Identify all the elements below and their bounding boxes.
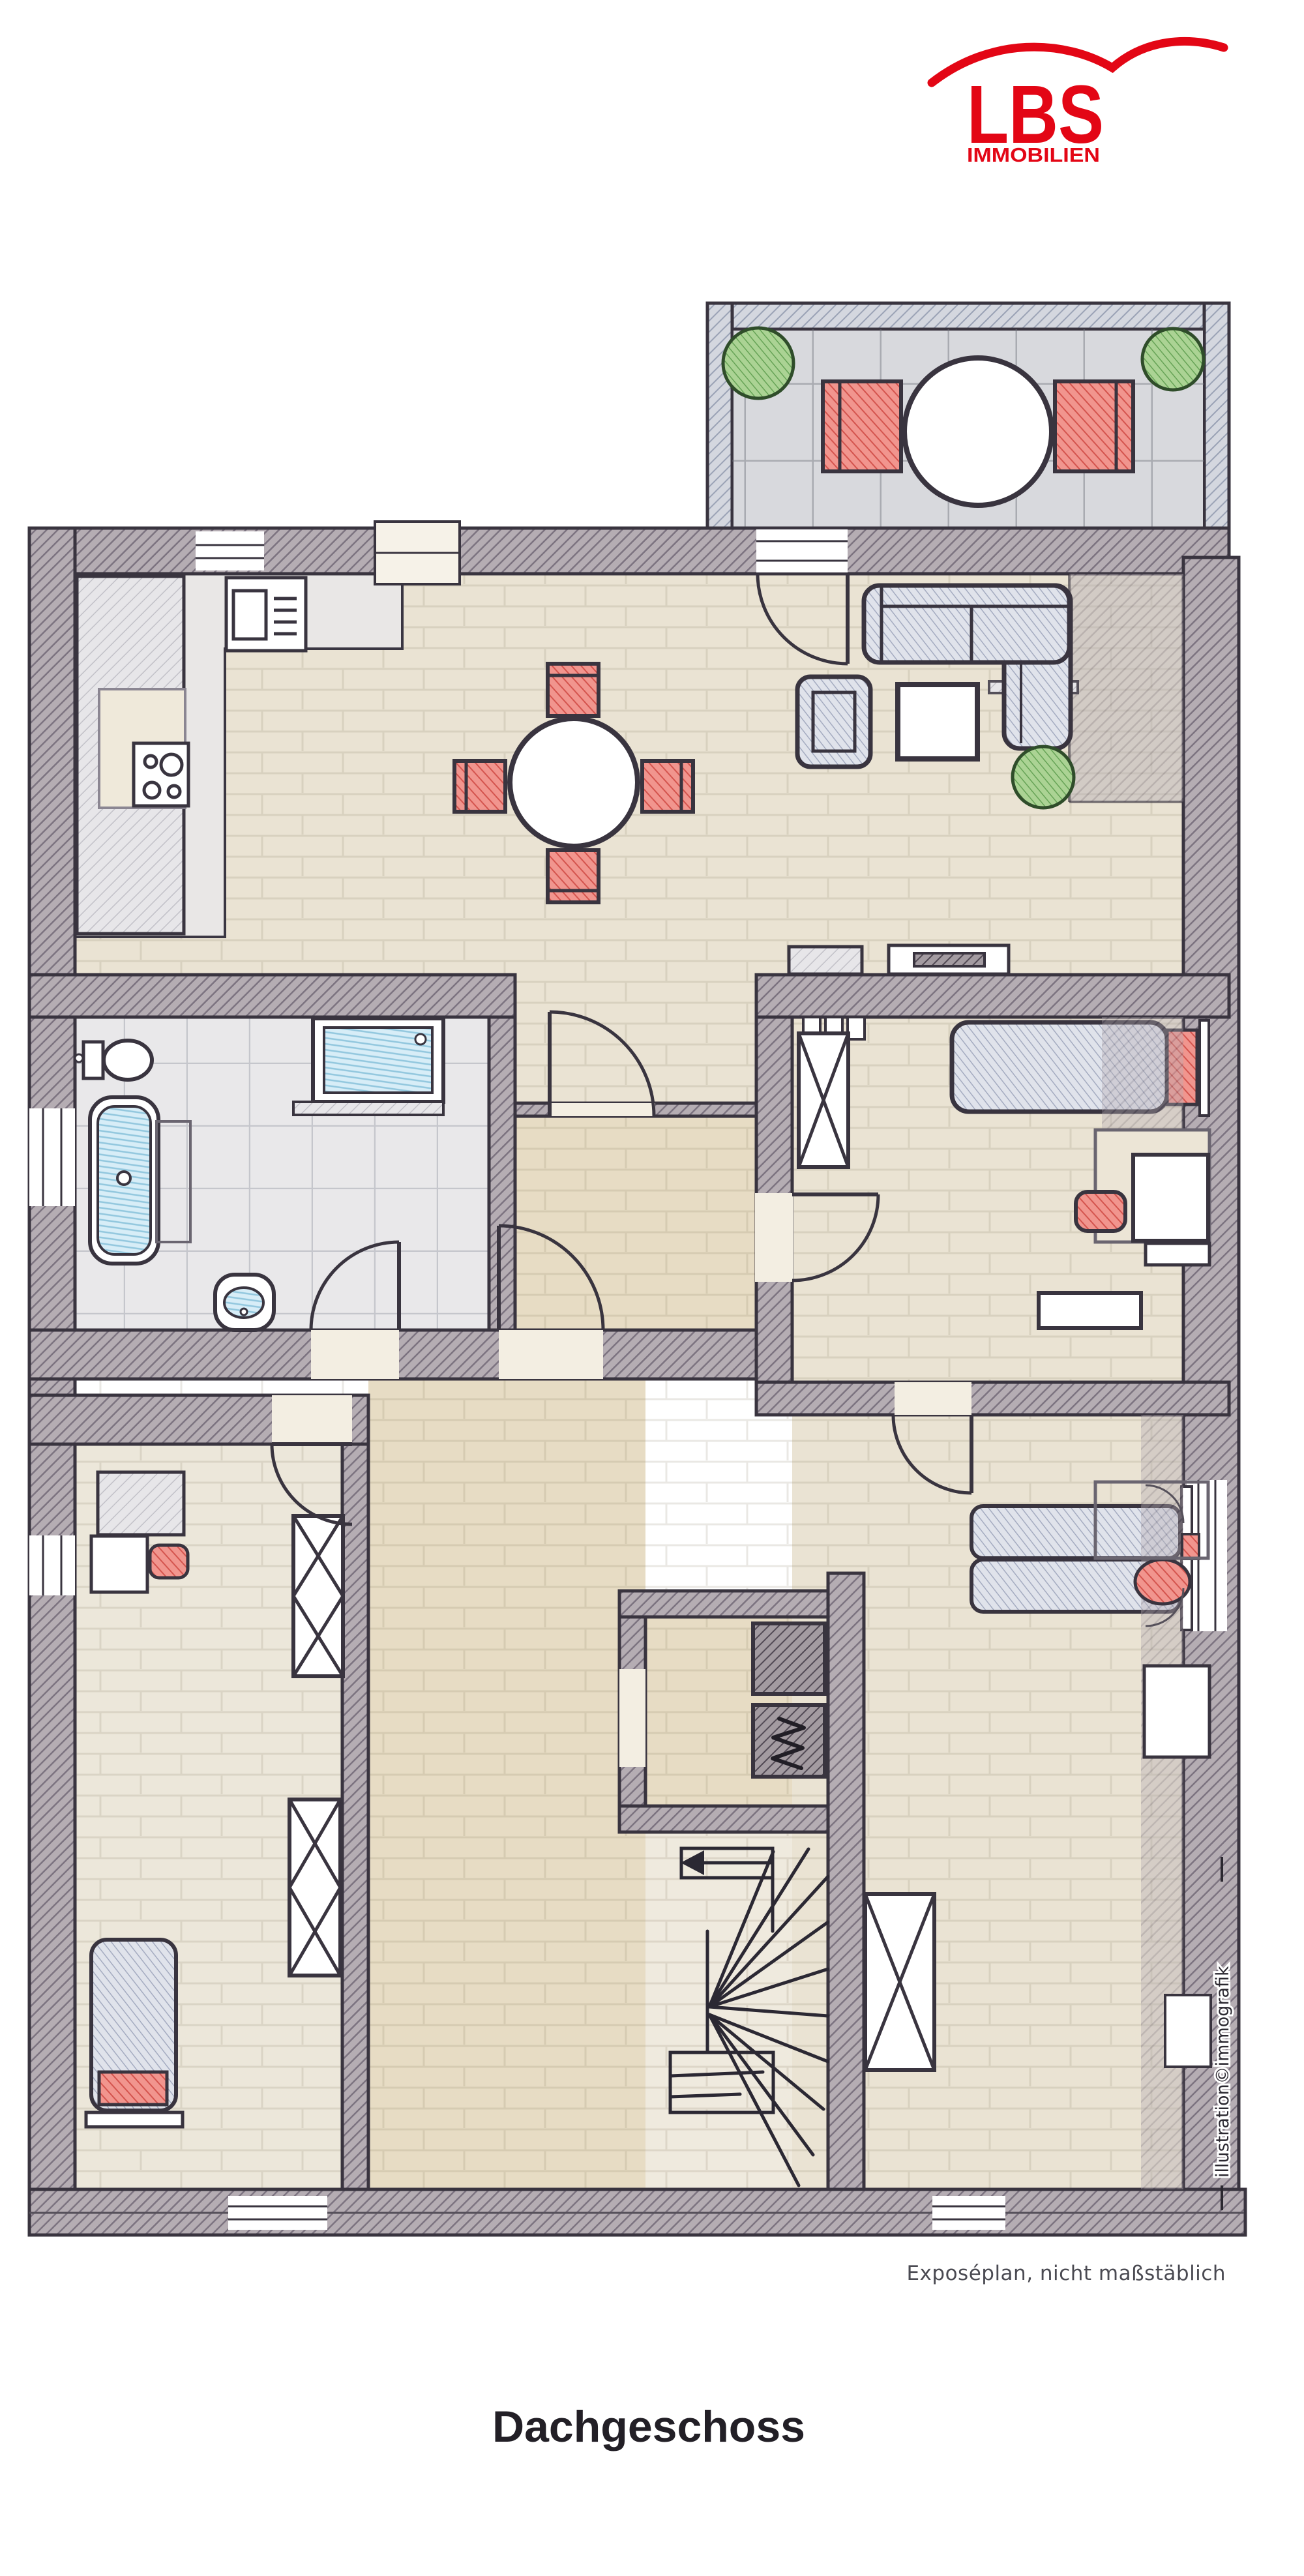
door-opening — [499, 1330, 603, 1379]
sideboard — [789, 947, 862, 974]
dining-table — [510, 718, 638, 846]
dining-chair — [454, 761, 505, 812]
window — [29, 1108, 75, 1206]
knee-wall — [1141, 1415, 1183, 2189]
door-opening — [619, 1669, 645, 1767]
balcony — [707, 303, 1229, 557]
washing-machine-icon — [753, 1623, 825, 1694]
sideboard — [1144, 1666, 1209, 1757]
dining-chair — [548, 664, 599, 716]
logo-subtext: IMMOBILIEN — [967, 143, 1100, 166]
balcony-table — [904, 358, 1052, 505]
wall-niche — [1165, 1995, 1211, 2067]
shower-shelf — [293, 1102, 443, 1115]
dining-chair — [642, 761, 693, 812]
wall-kitchen-bath — [29, 975, 515, 1017]
tv-board — [889, 945, 1009, 974]
bath-sink — [215, 1275, 274, 1330]
window — [228, 2196, 327, 2230]
balcony-wall — [707, 303, 732, 557]
door-opening — [311, 1330, 399, 1379]
armchair — [797, 677, 870, 767]
wardrobe — [293, 1516, 343, 1676]
balcony-wall — [707, 303, 1229, 329]
wall-roomBL-right — [342, 1444, 368, 2189]
wall-right — [1183, 557, 1239, 2189]
floorplan-canvas: LBS IMMOBILIEN — [0, 0, 1304, 2576]
door-opening — [755, 1193, 793, 1282]
window — [29, 1535, 75, 1595]
plan-title: Dachgeschoss — [492, 2402, 805, 2451]
plant-icon — [723, 328, 793, 398]
toilet-icon — [75, 1041, 152, 1080]
bed-pillow — [99, 2072, 167, 2105]
door-opening — [272, 1395, 352, 1444]
balcony-door-opening — [756, 529, 848, 572]
plan-disclaimer: Exposéplan, nicht maßstäblich — [906, 2262, 1226, 2285]
wardrobe — [865, 1894, 934, 2070]
wall-living-bedroom — [756, 975, 1229, 1017]
balcony-chair — [823, 381, 901, 471]
window — [196, 531, 264, 570]
bed — [86, 1940, 183, 2127]
wall-stair-right — [828, 1573, 864, 2189]
door-opening — [895, 1382, 971, 1415]
cooktop-icon — [134, 743, 188, 806]
shelf — [1146, 1243, 1209, 1265]
bed-footboard — [86, 2112, 183, 2127]
wall-roomBR-top — [756, 1382, 1229, 1415]
dining-chair — [548, 850, 599, 902]
window — [932, 2196, 1005, 2230]
knee-wall — [1069, 574, 1183, 802]
water-heater-icon — [753, 1705, 825, 1777]
kitchen-sink-icon — [226, 578, 306, 651]
balcony-wall — [1204, 303, 1229, 557]
desk — [1133, 1155, 1208, 1241]
plant-icon — [1013, 747, 1074, 808]
wardrobe — [289, 1799, 340, 1976]
plan-credit: illustration©immografik — [1213, 1966, 1233, 2178]
wardrobe — [799, 1033, 848, 1167]
table — [98, 1472, 184, 1535]
tv-icon — [914, 953, 985, 966]
shower — [313, 1018, 443, 1102]
knee-wall — [1102, 1017, 1183, 1131]
lowboard — [1039, 1293, 1141, 1328]
lbs-logo: LBS IMMOBILIEN — [932, 41, 1224, 166]
desk — [91, 1536, 147, 1592]
balcony-chair — [1055, 381, 1133, 471]
plant-icon — [1142, 329, 1204, 390]
wall-bath-right — [489, 1017, 515, 1379]
window — [375, 522, 460, 584]
desk-chair — [150, 1545, 188, 1578]
door-opening — [550, 1103, 655, 1116]
wall-left — [29, 528, 75, 2235]
bed-pillow — [1182, 1534, 1199, 1559]
bed-headboard — [1200, 1020, 1209, 1116]
coffee-table — [898, 685, 977, 759]
desk-chair — [1076, 1192, 1125, 1231]
bathtub — [90, 1097, 158, 1264]
